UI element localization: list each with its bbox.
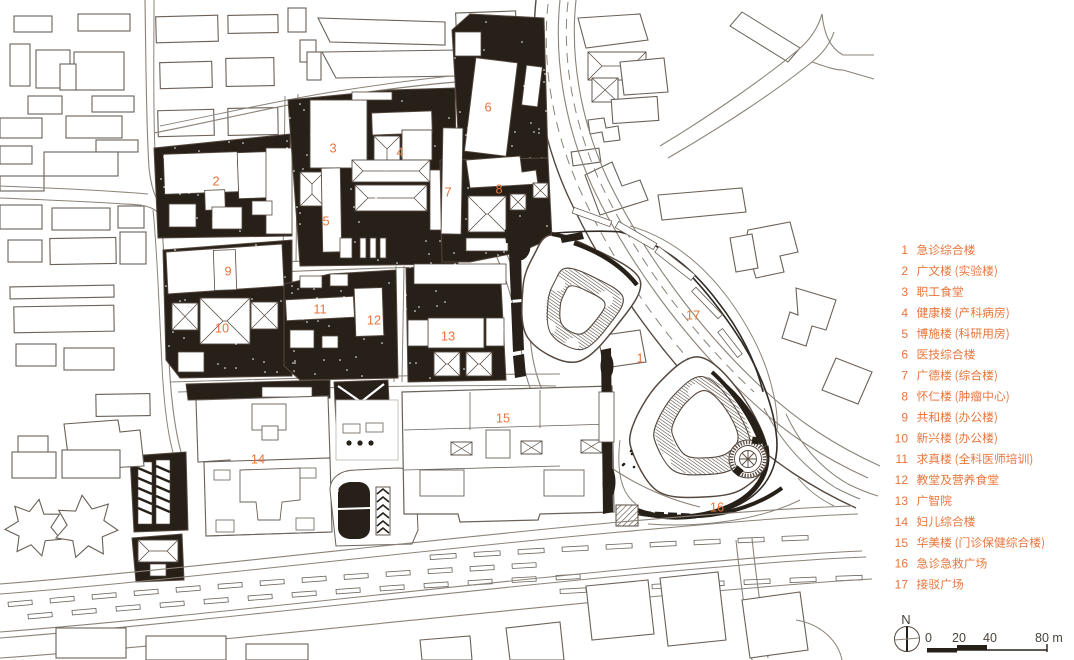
svg-text:4: 4 [901,306,908,320]
svg-text:8: 8 [901,390,908,404]
svg-text:11: 11 [896,452,909,466]
svg-text:40: 40 [983,631,997,645]
svg-text:12: 12 [367,313,381,328]
svg-text:4: 4 [396,145,403,160]
svg-text:16: 16 [710,500,724,515]
svg-text:6: 6 [901,348,908,362]
svg-text:17: 17 [686,308,700,323]
svg-text:13: 13 [441,329,455,344]
svg-text:14: 14 [895,515,909,529]
svg-text:20: 20 [952,631,966,645]
svg-text:13: 13 [895,494,909,508]
svg-text:15: 15 [895,536,909,550]
svg-text:8: 8 [495,182,502,197]
svg-text:14: 14 [251,452,265,467]
svg-text:2: 2 [212,174,219,189]
svg-text:11: 11 [313,302,326,317]
svg-text:9: 9 [901,410,908,424]
svg-text:5: 5 [901,327,908,341]
svg-text:7: 7 [444,185,451,200]
svg-text:6: 6 [484,100,491,115]
svg-text:17: 17 [895,578,909,592]
svg-text:80 m: 80 m [1035,631,1063,645]
svg-text:7: 7 [901,369,908,383]
svg-text:3: 3 [329,141,336,156]
svg-text:12: 12 [895,473,909,487]
svg-text:2: 2 [901,264,908,278]
svg-text:5: 5 [322,214,329,229]
svg-text:1: 1 [636,351,643,366]
svg-text:15: 15 [496,411,510,426]
svg-text:9: 9 [224,264,231,279]
svg-text:3: 3 [901,285,908,299]
svg-text:10: 10 [215,321,229,336]
svg-text:10: 10 [895,431,909,445]
svg-text:N: N [901,612,910,627]
svg-text:0: 0 [925,631,932,645]
svg-text:16: 16 [895,557,909,571]
svg-text:1: 1 [901,243,908,257]
